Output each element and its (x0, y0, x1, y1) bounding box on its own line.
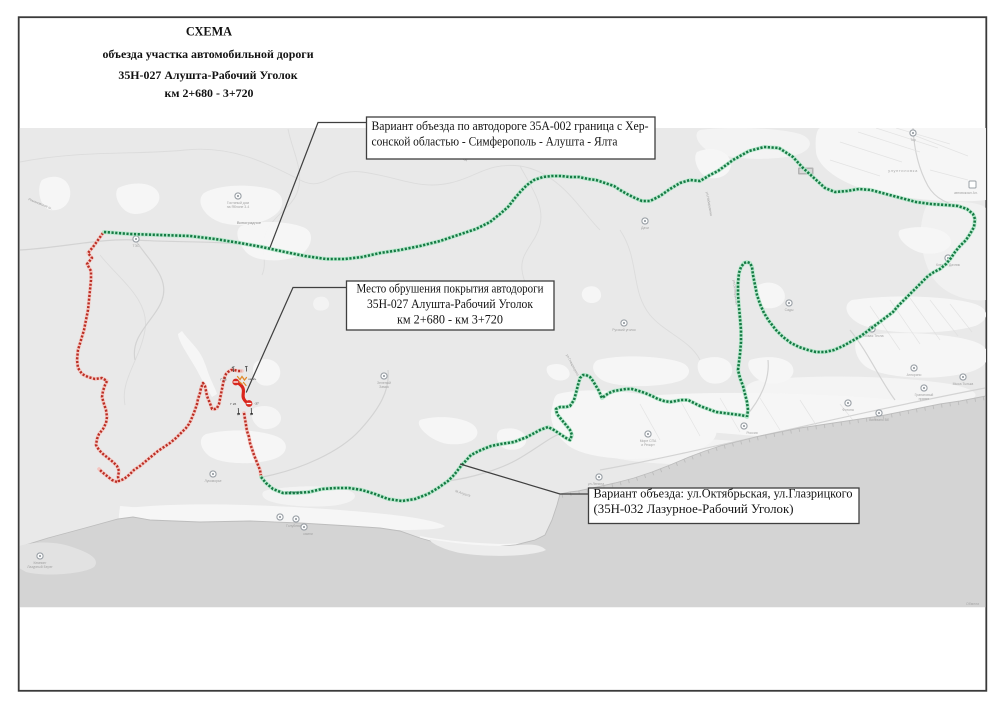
svg-text:Место обрушения покрытия автод: Место обрушения покрытия автодороги (357, 282, 544, 296)
svg-text:Замок: Замок (379, 385, 389, 389)
svg-text:км 2+680 - 3+720: км 2+680 - 3+720 (165, 86, 254, 100)
svg-text:Г 25: Г 25 (221, 378, 227, 382)
svg-text:(35Н-032 Лазурное-Рабочий Угол: (35Н-032 Лазурное-Рабочий Уголок) (594, 502, 794, 516)
svg-text:Обмели: Обмели (966, 602, 979, 606)
svg-text:ул.Ленина: ул.Ленина (285, 490, 301, 495)
svg-text:ул.Ленина: ул.Ленина (588, 482, 604, 486)
svg-text:Сады: Сады (785, 308, 794, 312)
svg-text:35Н-027 Алушта-Рабочий Уголок: 35Н-027 Алушта-Рабочий Уголок (367, 297, 533, 311)
svg-text:Лукоморье: Лукоморье (204, 479, 221, 483)
svg-text:сонской областью - Симферополь: сонской областью - Симферополь - Алушта … (372, 135, 619, 149)
svg-text:Фотона: Фотона (842, 408, 854, 412)
svg-text:Лазурный Берег: Лазурный Берег (27, 565, 53, 569)
svg-text:ТЭС: ТЭС (133, 244, 141, 248)
svg-text:СХЕМА: СХЕМА (186, 25, 232, 39)
svg-text:камни: камни (303, 532, 313, 536)
svg-text:35Н-027 Алушта-Рабочий Уголок: 35Н-027 Алушта-Рабочий Уголок (118, 68, 297, 82)
svg-text:Русский уголок: Русский уголок (612, 328, 636, 332)
svg-text:улуптиловка: улуптиловка (888, 168, 918, 173)
svg-text:Дачи: Дачи (641, 226, 649, 230)
svg-text:Виноградное: Виноградное (237, 220, 262, 225)
svg-text:-37: -37 (254, 401, 259, 405)
svg-text:Вигевано Вб: Вигевано Вб (869, 418, 889, 422)
svg-text:Г 26: Г 26 (230, 402, 236, 406)
svg-text:объезда участка автомобильной: объезда участка автомобильной дороги (102, 47, 313, 61)
svg-text:на Яблоне 3-4: на Яблоне 3-4 (227, 205, 250, 209)
svg-text:привет: привет (919, 397, 930, 401)
svg-text:автовокзал Ал.: автовокзал Ал. (954, 191, 978, 195)
svg-text:Вариант объезда: ул.Октябрьска: Вариант объезда: ул.Октябрьская, ул.Глаз… (594, 486, 853, 500)
svg-text:Ангорино: Ангорино (907, 373, 922, 377)
svg-text:км 2+680 - км 3+720: км 2+680 - км 3+720 (397, 313, 503, 327)
svg-text:Россия: Россия (746, 431, 757, 435)
svg-text:Мыса Тьлька: Мыса Тьлька (953, 382, 974, 386)
svg-text:Вариант объезда по автодороге: Вариант объезда по автодороге 35А-002 гр… (372, 119, 649, 133)
svg-text:Тор: Тор (910, 138, 916, 142)
svg-text:и Резорт: и Резорт (641, 443, 655, 447)
